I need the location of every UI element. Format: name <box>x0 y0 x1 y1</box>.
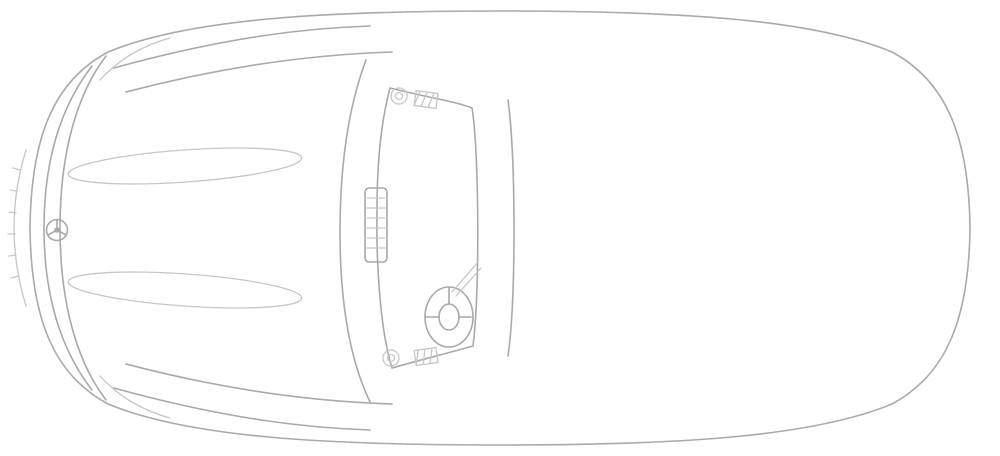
car-body-outline <box>30 11 970 445</box>
diagram-stage <box>0 0 1000 456</box>
front-lip <box>14 150 26 306</box>
vehicle-top-view-diagram <box>0 0 1000 456</box>
body-silhouette <box>30 11 970 445</box>
